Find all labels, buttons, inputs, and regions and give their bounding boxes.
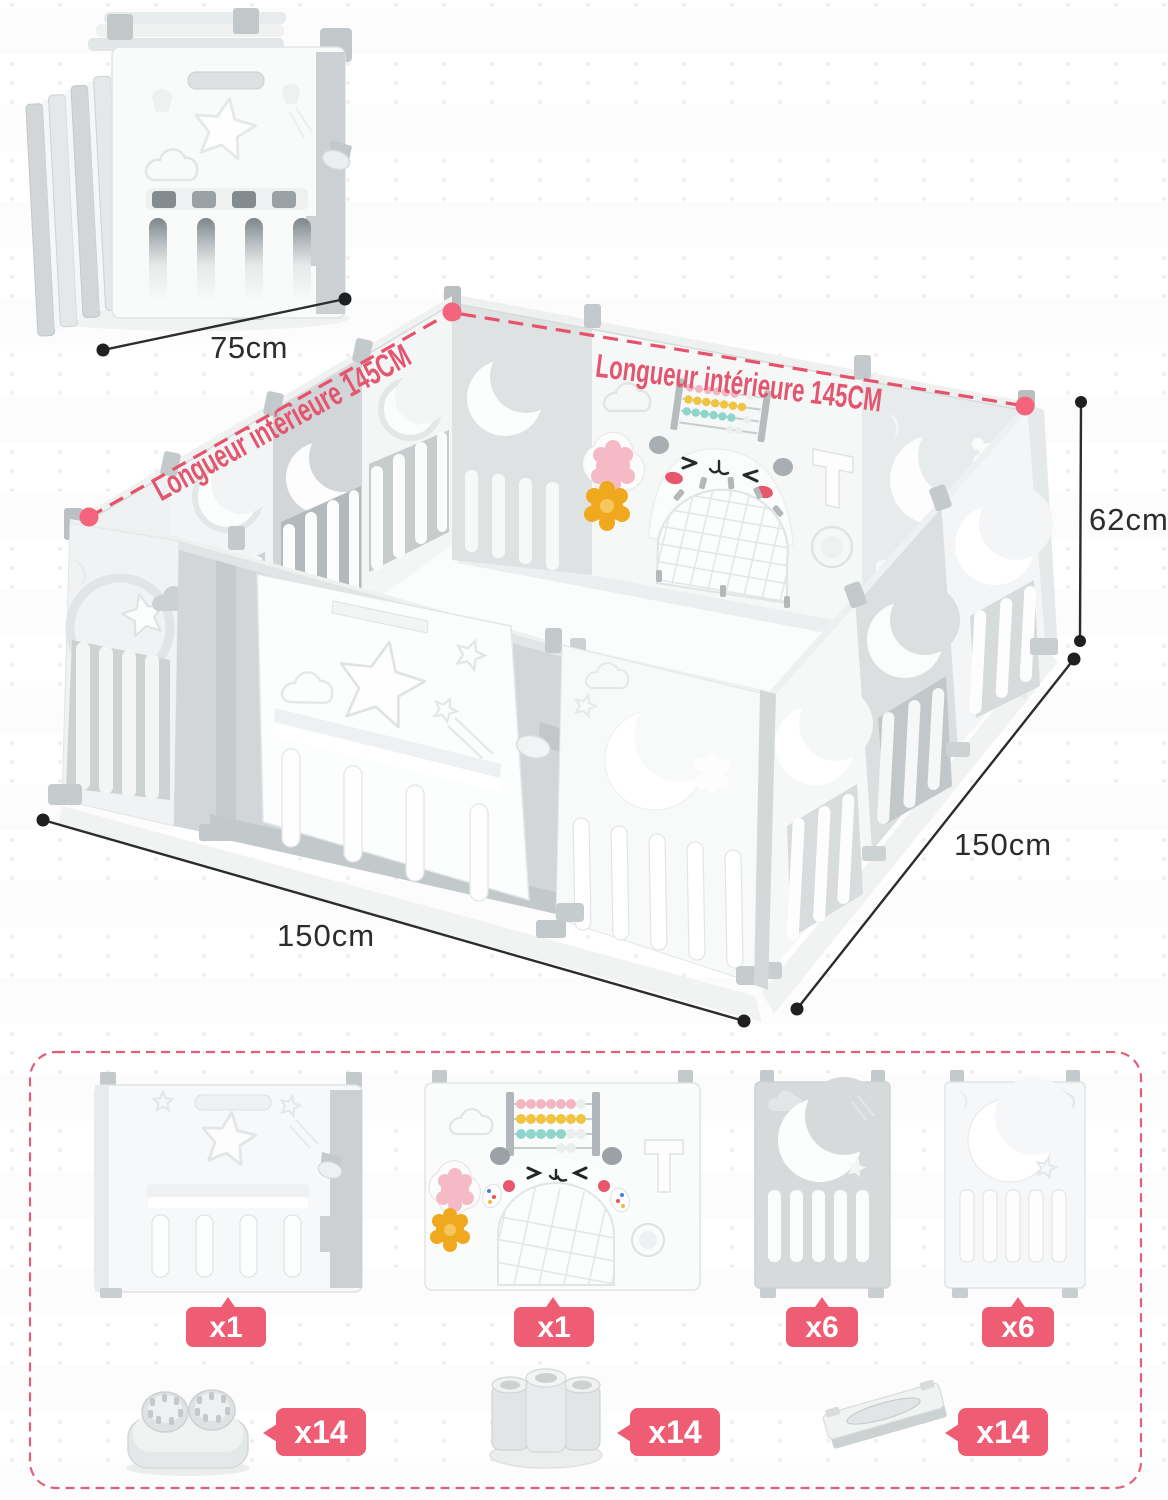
svg-text:62cm: 62cm bbox=[1089, 502, 1168, 537]
svg-text:150cm: 150cm bbox=[954, 827, 1052, 862]
svg-text:x14: x14 bbox=[976, 1414, 1030, 1450]
svg-text:x1: x1 bbox=[209, 1311, 242, 1344]
svg-text:x1: x1 bbox=[537, 1311, 570, 1344]
svg-text:x6: x6 bbox=[1001, 1311, 1034, 1344]
svg-text:x6: x6 bbox=[805, 1311, 838, 1344]
svg-text:x14: x14 bbox=[294, 1414, 348, 1450]
svg-text:75cm: 75cm bbox=[210, 330, 288, 365]
svg-text:x14: x14 bbox=[648, 1414, 702, 1450]
svg-text:150cm: 150cm bbox=[277, 918, 375, 953]
